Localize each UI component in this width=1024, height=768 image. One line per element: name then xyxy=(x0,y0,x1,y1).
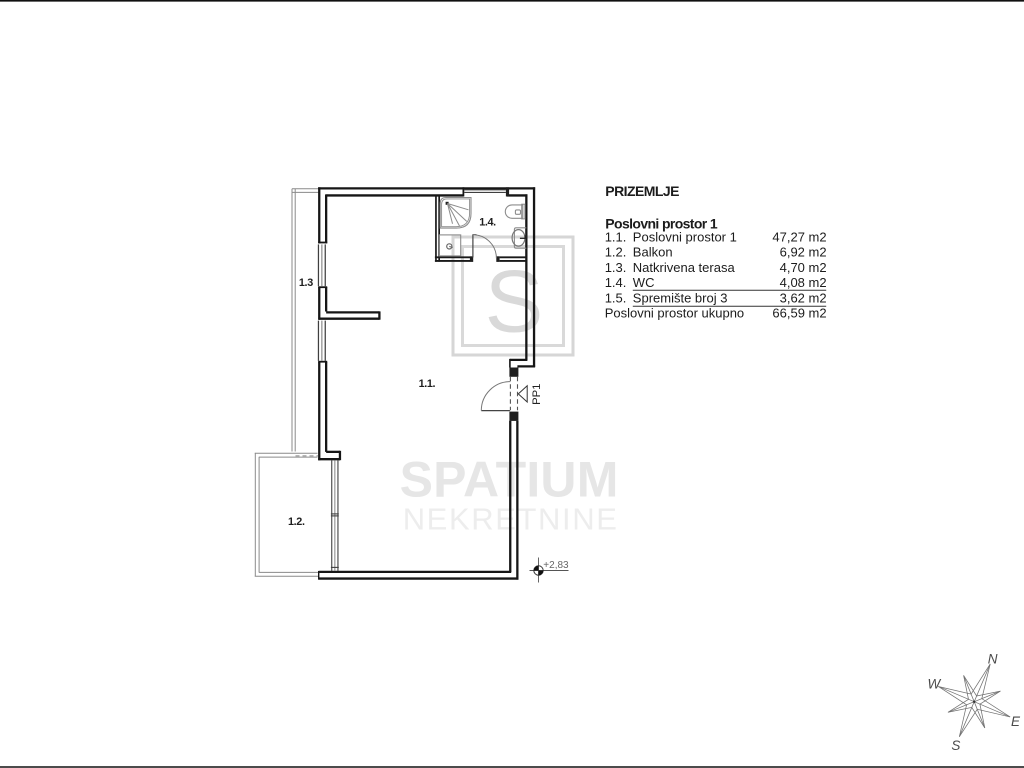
svg-text:1.4.: 1.4. xyxy=(605,275,627,290)
svg-text:W: W xyxy=(928,676,942,691)
svg-text:4,70 m2: 4,70 m2 xyxy=(780,260,827,275)
svg-text:E: E xyxy=(1011,714,1021,729)
svg-text:Poslovni prostor ukupno: Poslovni prostor ukupno xyxy=(605,306,744,321)
svg-text:PRIZEMLJE: PRIZEMLJE xyxy=(605,183,679,199)
svg-text:1.1.: 1.1. xyxy=(419,378,436,390)
svg-text:1.2.: 1.2. xyxy=(605,245,627,260)
svg-text:1.3.: 1.3. xyxy=(605,260,627,275)
svg-text:4,08 m2: 4,08 m2 xyxy=(780,275,827,290)
svg-text:6,92 m2: 6,92 m2 xyxy=(780,245,827,260)
svg-text:1.4.: 1.4. xyxy=(479,217,496,229)
svg-text:Natkrivena terasa: Natkrivena terasa xyxy=(633,260,736,275)
svg-text:Poslovni prostor 1: Poslovni prostor 1 xyxy=(633,230,737,245)
svg-text:SPATIUM: SPATIUM xyxy=(400,452,619,508)
svg-text:1.5.: 1.5. xyxy=(605,290,627,305)
svg-text:N: N xyxy=(988,651,998,666)
svg-text:WC: WC xyxy=(633,275,655,290)
svg-text:Spremište broj 3: Spremište broj 3 xyxy=(633,290,728,305)
svg-text:1.2.: 1.2. xyxy=(288,516,305,528)
svg-text:1.1.: 1.1. xyxy=(605,230,627,245)
svg-text:S: S xyxy=(951,738,960,753)
svg-text:+2,83: +2,83 xyxy=(543,560,569,571)
svg-text:1.3: 1.3 xyxy=(299,277,313,289)
svg-text:66,59 m2: 66,59 m2 xyxy=(772,306,826,321)
svg-text:3,62 m2: 3,62 m2 xyxy=(780,290,827,305)
svg-text:PP1: PP1 xyxy=(531,384,543,405)
svg-text:Balkon: Balkon xyxy=(633,245,673,260)
svg-text:47,27 m2: 47,27 m2 xyxy=(772,230,826,245)
